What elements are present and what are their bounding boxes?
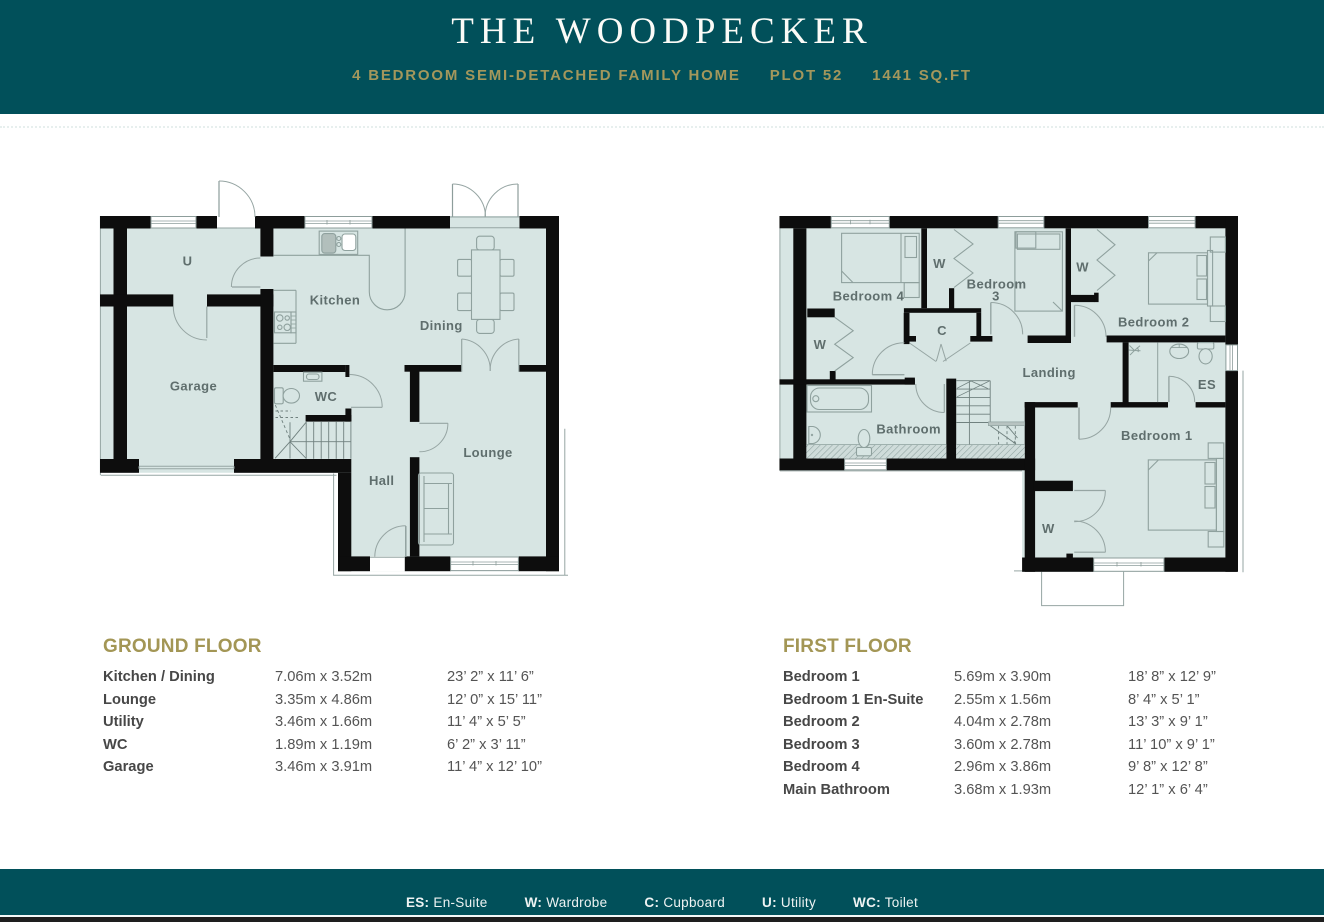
svg-text:3: 3 [992,289,1000,304]
svg-text:Bedroom 1: Bedroom 1 [1121,428,1193,443]
svg-text:W: W [814,337,827,352]
svg-text:Garage: Garage [170,378,217,393]
svg-text:ES: ES [1198,377,1216,392]
svg-text:Bathroom: Bathroom [876,421,941,436]
svg-text:WC: WC [315,389,338,404]
svg-text:Bedroom 2: Bedroom 2 [1118,314,1190,329]
svg-text:W: W [933,256,946,271]
svg-text:Kitchen: Kitchen [310,293,360,308]
svg-text:W: W [1076,260,1089,275]
svg-text:W: W [1042,521,1055,536]
svg-text:C: C [937,323,947,338]
svg-text:Hall: Hall [369,473,394,488]
svg-text:U: U [183,254,193,269]
svg-text:Bedroom 4: Bedroom 4 [833,288,905,303]
svg-text:Dining: Dining [420,318,463,333]
svg-text:Lounge: Lounge [463,445,512,460]
svg-text:Landing: Landing [1023,365,1076,380]
